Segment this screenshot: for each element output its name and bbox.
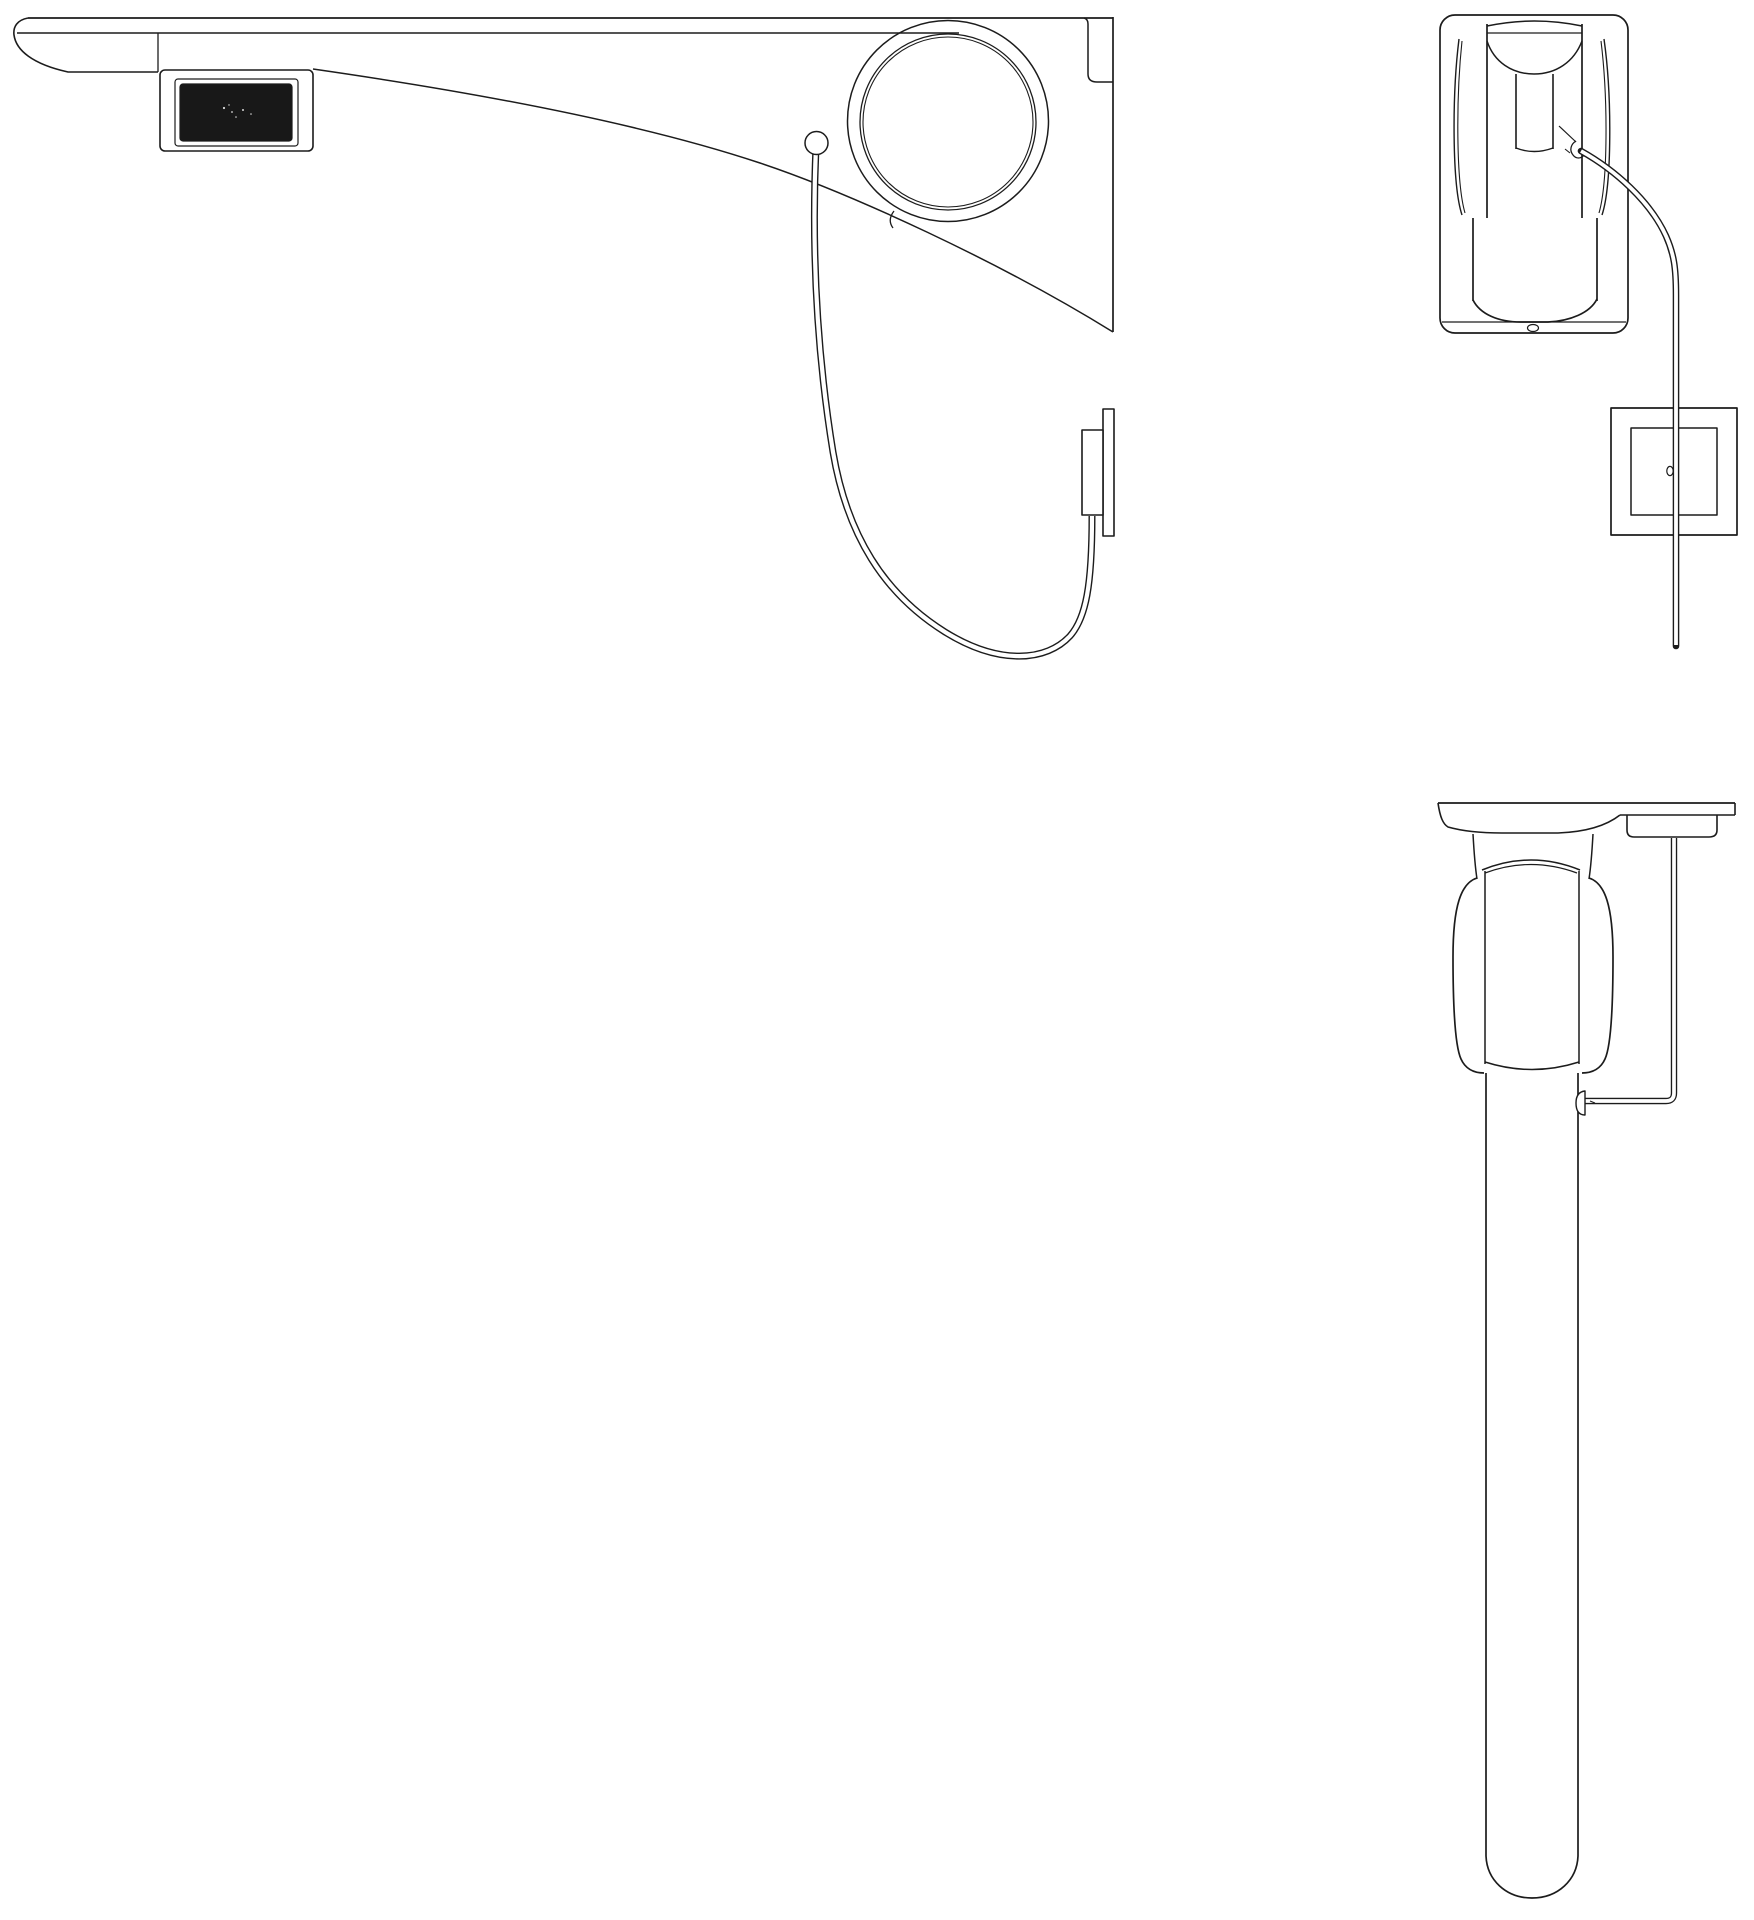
- spout-tube-front: [1516, 74, 1553, 152]
- tube-tick-mark: [1565, 149, 1570, 153]
- ring-break-mark: [890, 211, 894, 228]
- front-view: [1440, 15, 1737, 646]
- neck-right: [1589, 834, 1593, 879]
- drain-hole: [1528, 325, 1539, 332]
- cable-connector-cap: [1576, 1091, 1585, 1115]
- body-barrel-top: [1453, 860, 1613, 1073]
- top-view: [1438, 803, 1735, 1898]
- barrel-crown-arc-inner: [1485, 865, 1577, 874]
- faucet-technical-drawing: [0, 0, 1754, 1920]
- cable-grommet: [805, 132, 828, 155]
- sensor-window: [180, 84, 292, 141]
- neck-left: [1473, 834, 1477, 879]
- cable-clip-mark: [1667, 466, 1673, 475]
- spout-tube-end: [1486, 1856, 1578, 1898]
- control-box-top: [1627, 815, 1717, 837]
- sensor-cable-top: [1585, 838, 1674, 1101]
- body-dome-bottom: [1487, 41, 1582, 74]
- spout-underside-curve: [313, 69, 1113, 332]
- control-box-body: [1082, 430, 1103, 515]
- body-barrel: [1454, 21, 1610, 322]
- escutcheon-top: [1438, 803, 1620, 833]
- spout-wall-step: [1084, 18, 1113, 82]
- control-box-flange: [1103, 409, 1114, 536]
- cable-lead-line: [1559, 126, 1576, 142]
- drawing-canvas: [0, 0, 1754, 1920]
- body-dome-top: [1487, 21, 1582, 26]
- mounting-ring: [848, 21, 1049, 229]
- barrel-bottom-arc: [1485, 1062, 1579, 1070]
- control-box-side: [1082, 409, 1114, 536]
- spout-tube-top: [1486, 1073, 1578, 1898]
- spout-nose: [14, 18, 158, 72]
- body-bottom-curve: [1473, 299, 1597, 322]
- side-view: [14, 17, 1114, 656]
- sensor-cable: [814, 146, 1092, 656]
- wall-plate: [1440, 15, 1628, 333]
